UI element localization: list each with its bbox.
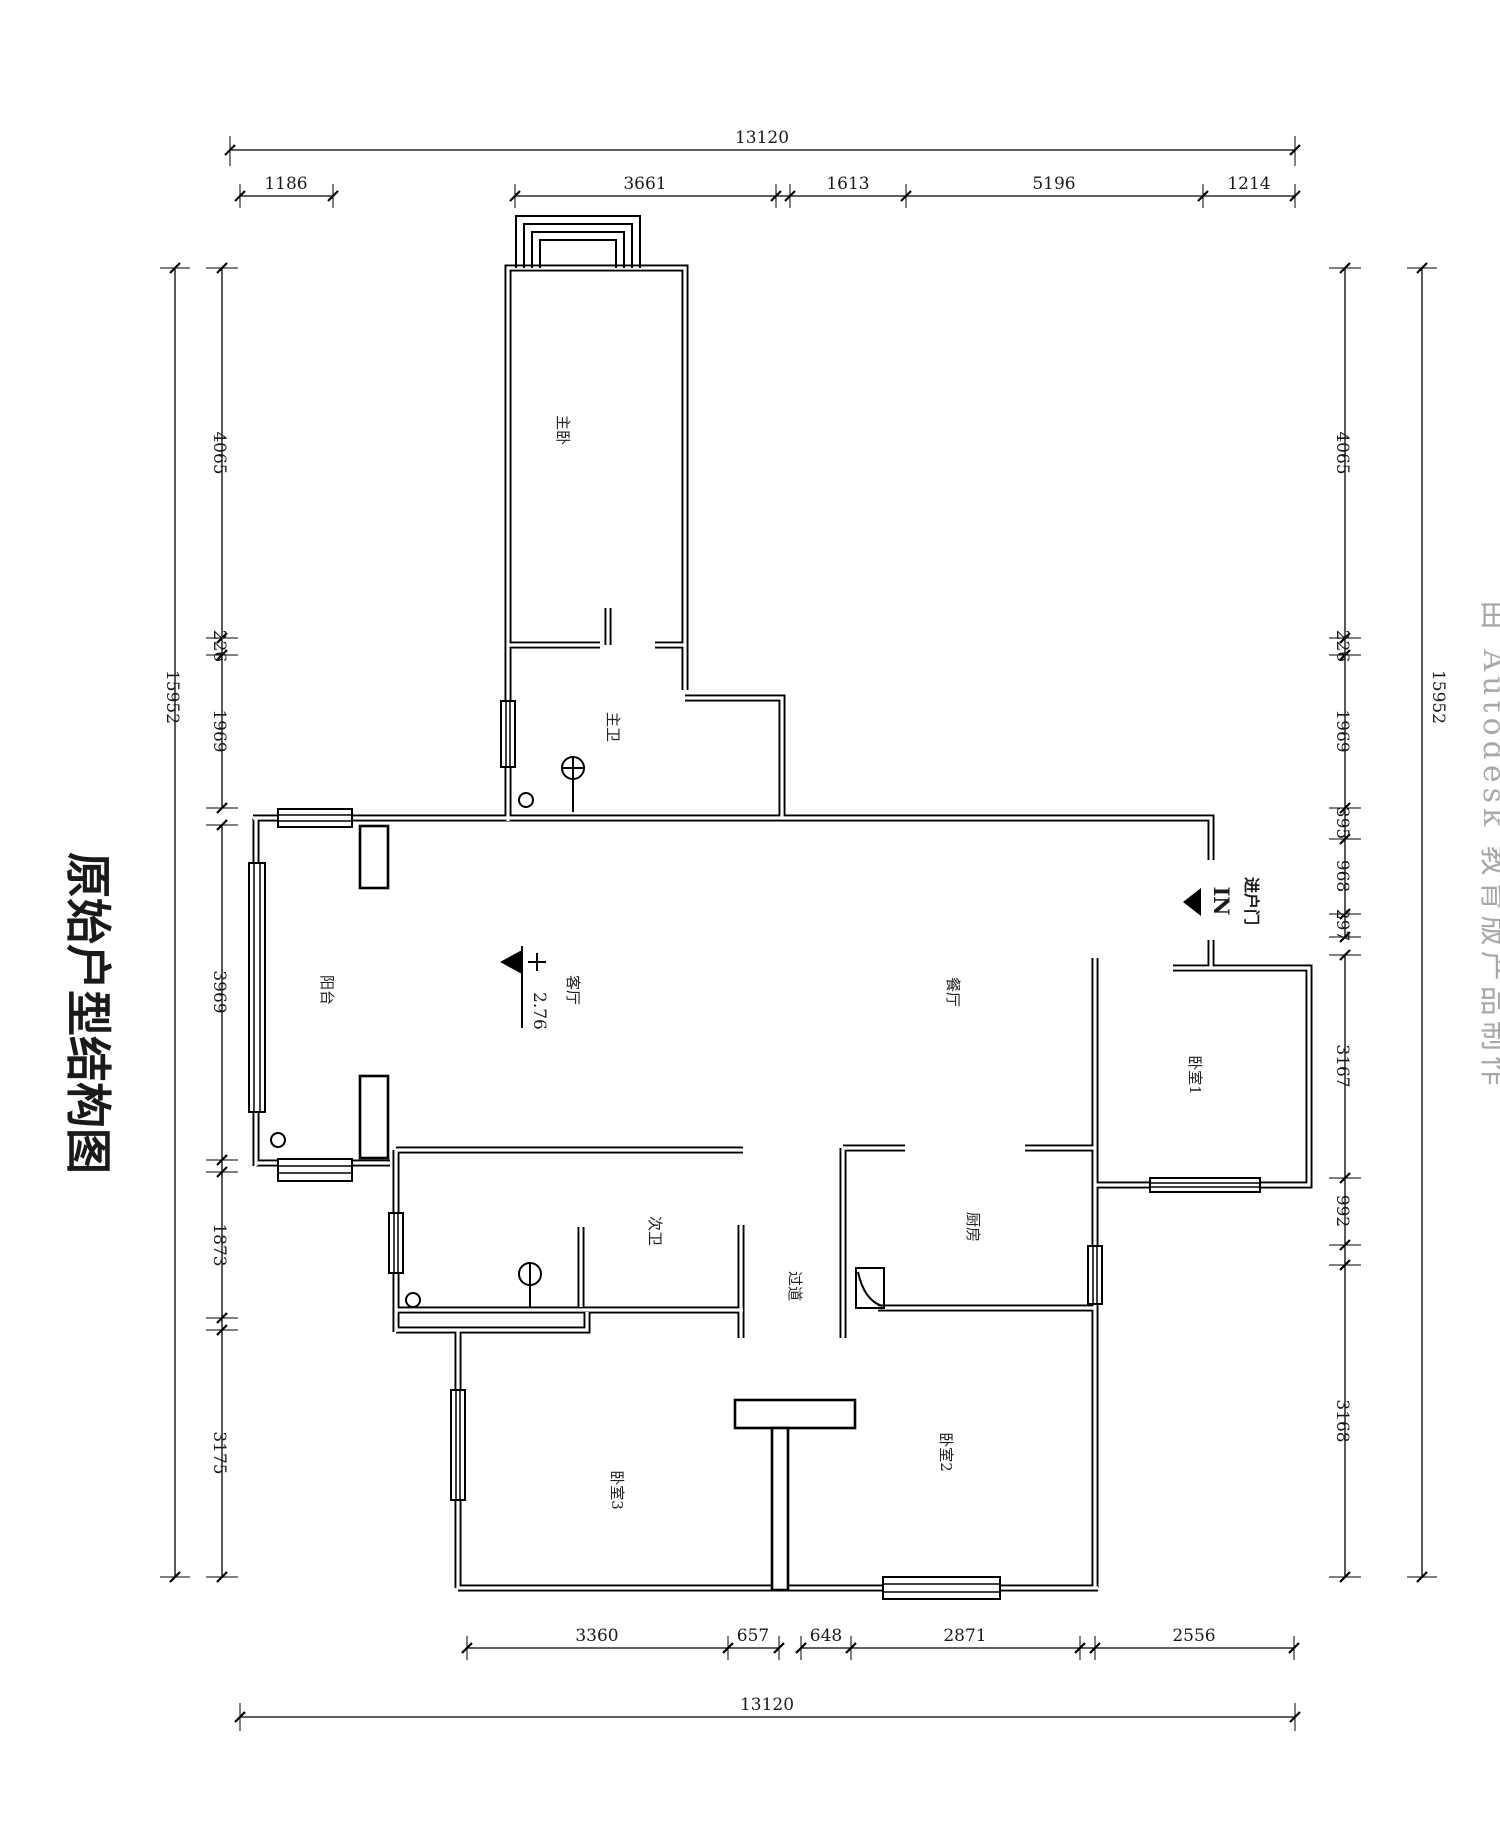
bedroom3-window	[451, 1390, 465, 1500]
room-label-corridor: 过道	[786, 1271, 804, 1301]
dim-left-seg-1: 4065	[209, 431, 229, 474]
second-bath-window	[389, 1213, 403, 1273]
dim-left-seg-5: 1873	[209, 1223, 229, 1266]
dim-right-seg-6: 297	[1332, 909, 1352, 941]
room-label-dining-room: 餐厅	[944, 977, 962, 1007]
balcony-window-bottom	[278, 1159, 352, 1181]
dim-top-seg-4: 5196	[1032, 174, 1075, 194]
entry-arrow-icon	[1183, 888, 1201, 916]
room-label-bedroom3: 卧室3	[608, 1470, 626, 1510]
kitchen-window	[1088, 1246, 1102, 1304]
second-bath-drain-icon	[406, 1293, 420, 1307]
balcony-pillar-top	[360, 826, 388, 888]
level-triangle-icon	[500, 950, 522, 974]
bedroom2-window	[883, 1577, 1000, 1599]
dim-top-overall: 13120	[735, 128, 789, 148]
kitchen-door-swing-icon	[856, 1268, 884, 1308]
level-value: 2.76	[529, 992, 549, 1030]
dim-left-seg-2: 226	[209, 630, 229, 662]
dimension-top: 13120 1186 3661 1613 5196 1214	[225, 128, 1300, 208]
balcony-pillar-bottom	[360, 1076, 388, 1158]
dim-top-seg-2: 3661	[623, 174, 666, 194]
room-label-bedroom1: 卧室1	[1186, 1055, 1204, 1095]
structural-columns	[360, 826, 855, 1590]
watermark-text: 由 Autodesk 教育版产品制作	[1476, 600, 1500, 1091]
room-label-balcony: 阳台	[318, 975, 336, 1005]
entry-label: 进户门	[1242, 877, 1261, 925]
room-label-bedroom2: 卧室2	[937, 1432, 955, 1472]
dim-right-overall: 15952	[1428, 670, 1448, 724]
room-label-living-room: 客厅	[564, 975, 582, 1005]
dim-bottom-seg-1: 3360	[575, 1626, 618, 1646]
dim-bottom-overall: 13120	[740, 1695, 794, 1715]
dim-right-seg-7: 3167	[1332, 1044, 1352, 1087]
balcony-window-top	[278, 809, 352, 827]
master-bath-window	[501, 701, 515, 767]
dim-bottom-seg-2: 657	[737, 1626, 769, 1646]
master-bath-drain-icon	[519, 793, 533, 807]
walls	[253, 268, 1309, 1588]
room-label-second-bath: 次卫	[646, 1216, 664, 1246]
room-label-kitchen: 厨房	[964, 1212, 982, 1242]
dim-top-seg-5: 1214	[1227, 174, 1270, 194]
level-marker: 2.76	[500, 946, 549, 1030]
dim-top-seg-3: 1613	[826, 174, 869, 194]
dim-right-seg-4: 395	[1332, 807, 1352, 839]
page-title: 原始户型结构图	[61, 852, 115, 1174]
dim-right-seg-2: 226	[1332, 630, 1352, 662]
room-labels: 主卧 主卫 阳台 客厅 餐厅 卧室1 厨房 次卫 过道 卧室2 卧室3	[318, 415, 1204, 1510]
t-column-cap	[735, 1400, 855, 1428]
dim-top-seg-1: 1186	[264, 174, 307, 194]
t-column-stem	[772, 1428, 788, 1590]
room-label-master-bedroom: 主卧	[554, 415, 572, 445]
dim-bottom-seg-5: 2556	[1172, 1626, 1215, 1646]
dim-right-seg-1: 4065	[1332, 431, 1352, 474]
room-label-master-bath: 主卫	[604, 712, 622, 742]
dim-right-seg-8: 992	[1332, 1195, 1352, 1227]
dim-left-overall: 15952	[162, 670, 182, 724]
bay-window	[516, 216, 640, 268]
entry-door: IN 进户门	[1183, 877, 1261, 925]
dim-right-seg-5: 968	[1332, 860, 1352, 892]
dimension-right: 4065 226 1969 395 968 297 3167 992 3168 …	[1329, 263, 1448, 1582]
balcony-drain-icon	[271, 1133, 285, 1147]
dim-left-seg-3: 1969	[209, 709, 229, 752]
dim-left-seg-4: 3969	[209, 970, 229, 1013]
dim-right-seg-3: 1969	[1332, 709, 1352, 752]
master-bath-basin-icon	[562, 757, 584, 812]
floorplan-page: 2.76 IN 进户门 主卧 主卫 阳台 客厅 餐厅 卧室1 厨房 次卫 过道 …	[0, 0, 1500, 1844]
balcony-window-left	[249, 863, 265, 1112]
bedroom1-window	[1150, 1178, 1260, 1192]
dim-left-seg-6: 3175	[209, 1431, 229, 1474]
second-bath-basin-icon	[519, 1263, 541, 1308]
dim-right-seg-9: 3168	[1332, 1399, 1352, 1442]
floorplan-drawing: 2.76 IN 进户门 主卧 主卫 阳台 客厅 餐厅 卧室1 厨房 次卫 过道 …	[0, 0, 1500, 1844]
dim-bottom-seg-4: 2871	[943, 1626, 986, 1646]
dimension-bottom: 3360 657 648 2871 2556 13120	[235, 1626, 1300, 1731]
dim-bottom-seg-3: 648	[810, 1626, 842, 1646]
dimension-left: 4065 226 1969 3969 1873 3175 15952	[160, 263, 238, 1582]
entry-arrow-text: IN	[1209, 886, 1234, 915]
